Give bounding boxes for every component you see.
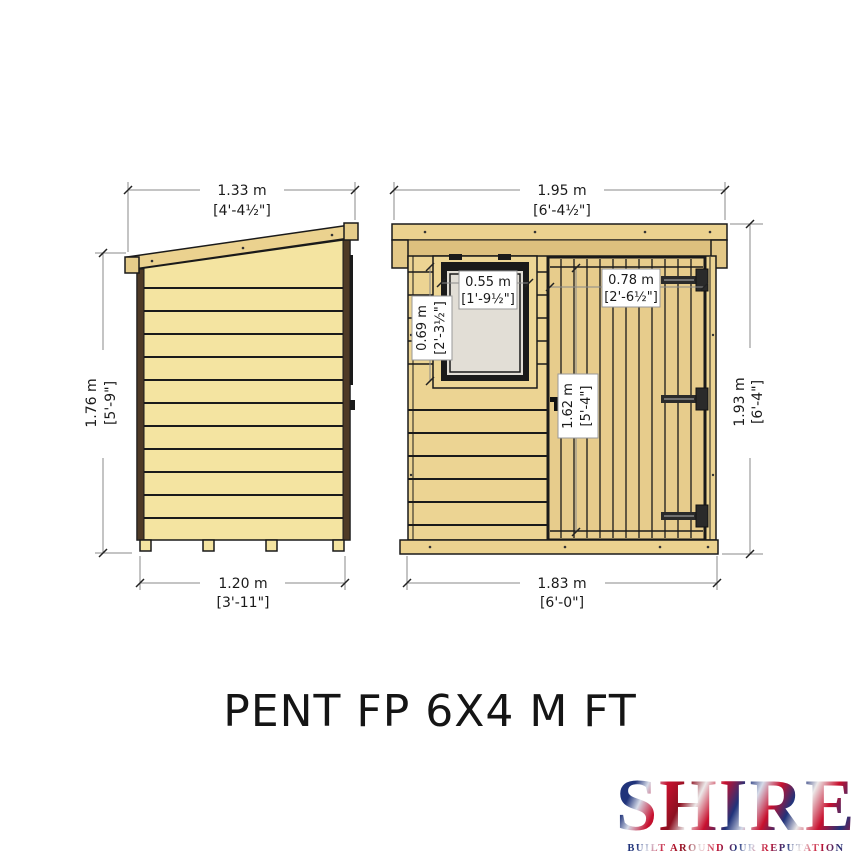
brand-name: SHIRE: [616, 771, 856, 841]
dim-window-height-metric: 0.69 m: [415, 305, 430, 351]
side-door-edge: [350, 255, 353, 385]
dim-door-height-imperial: [5'-4"]: [579, 386, 594, 427]
front-roof-fascia: [392, 224, 727, 240]
dim-front-base-width-imperial: [6'-0"]: [540, 595, 584, 611]
dim-front-total-height: 1.93 m [6'-4"]: [722, 220, 766, 558]
side-corner-trim-front: [343, 240, 350, 540]
dim-window-width-metric: 0.55 m: [465, 275, 511, 290]
front-base-rail: [400, 540, 718, 554]
dim-side-wall-height: 1.76 m [5'-9"]: [84, 249, 132, 557]
side-roof-end-cap-right: [344, 223, 358, 240]
dim-window-width-imperial: [1'-9½"]: [461, 292, 515, 307]
dim-side-roof-width-metric: 1.33 m: [217, 183, 266, 199]
brand-tagline: BUILT AROUND OUR REPUTATION: [616, 843, 856, 854]
dim-front-total-height-metric: 1.93 m: [732, 377, 748, 426]
side-door-latch: [350, 400, 355, 410]
dim-front-total-height-imperial: [6'-4"]: [750, 380, 766, 424]
dim-front-base-width: 1.83 m [6'-0"]: [403, 556, 721, 611]
dim-door-height-metric: 1.62 m: [561, 383, 576, 429]
dim-side-wall-height-imperial: [5'-9"]: [103, 381, 119, 425]
dim-door-width-imperial: [2'-6½"]: [604, 290, 658, 305]
dim-side-wall-height-metric: 1.76 m: [84, 378, 100, 427]
dim-side-roof-width-imperial: [4'-4½"]: [213, 203, 271, 219]
dim-window-height-imperial: [2'-3½"]: [433, 301, 448, 355]
front-roof-overhang-left: [392, 240, 408, 268]
side-corner-trim-back: [137, 269, 144, 540]
product-title: PENT FP 6X4 M FT: [0, 686, 860, 737]
side-elevation: [125, 223, 358, 551]
dim-door-width-metric: 0.78 m: [608, 273, 654, 288]
dim-side-base-width-metric: 1.20 m: [218, 576, 267, 592]
brand-logo: SHIRE BUILT AROUND OUR REPUTATION: [616, 771, 856, 854]
side-roof-end-cap-left: [125, 257, 139, 273]
dim-front-roof-width-metric: 1.95 m: [537, 183, 586, 199]
side-feet: [140, 540, 344, 551]
window-clip-left: [449, 254, 462, 260]
dim-front-roof-width-imperial: [6'-4½"]: [533, 203, 591, 219]
front-roof-underband: [403, 240, 716, 256]
dim-front-base-width-metric: 1.83 m: [537, 576, 586, 592]
dim-side-base-width-imperial: [3'-11"]: [217, 595, 270, 611]
dim-side-base-width: 1.20 m [3'-11"]: [136, 556, 349, 611]
window-clip-right: [498, 254, 511, 260]
dim-front-roof-width: 1.95 m [6'-4½"]: [390, 182, 729, 220]
